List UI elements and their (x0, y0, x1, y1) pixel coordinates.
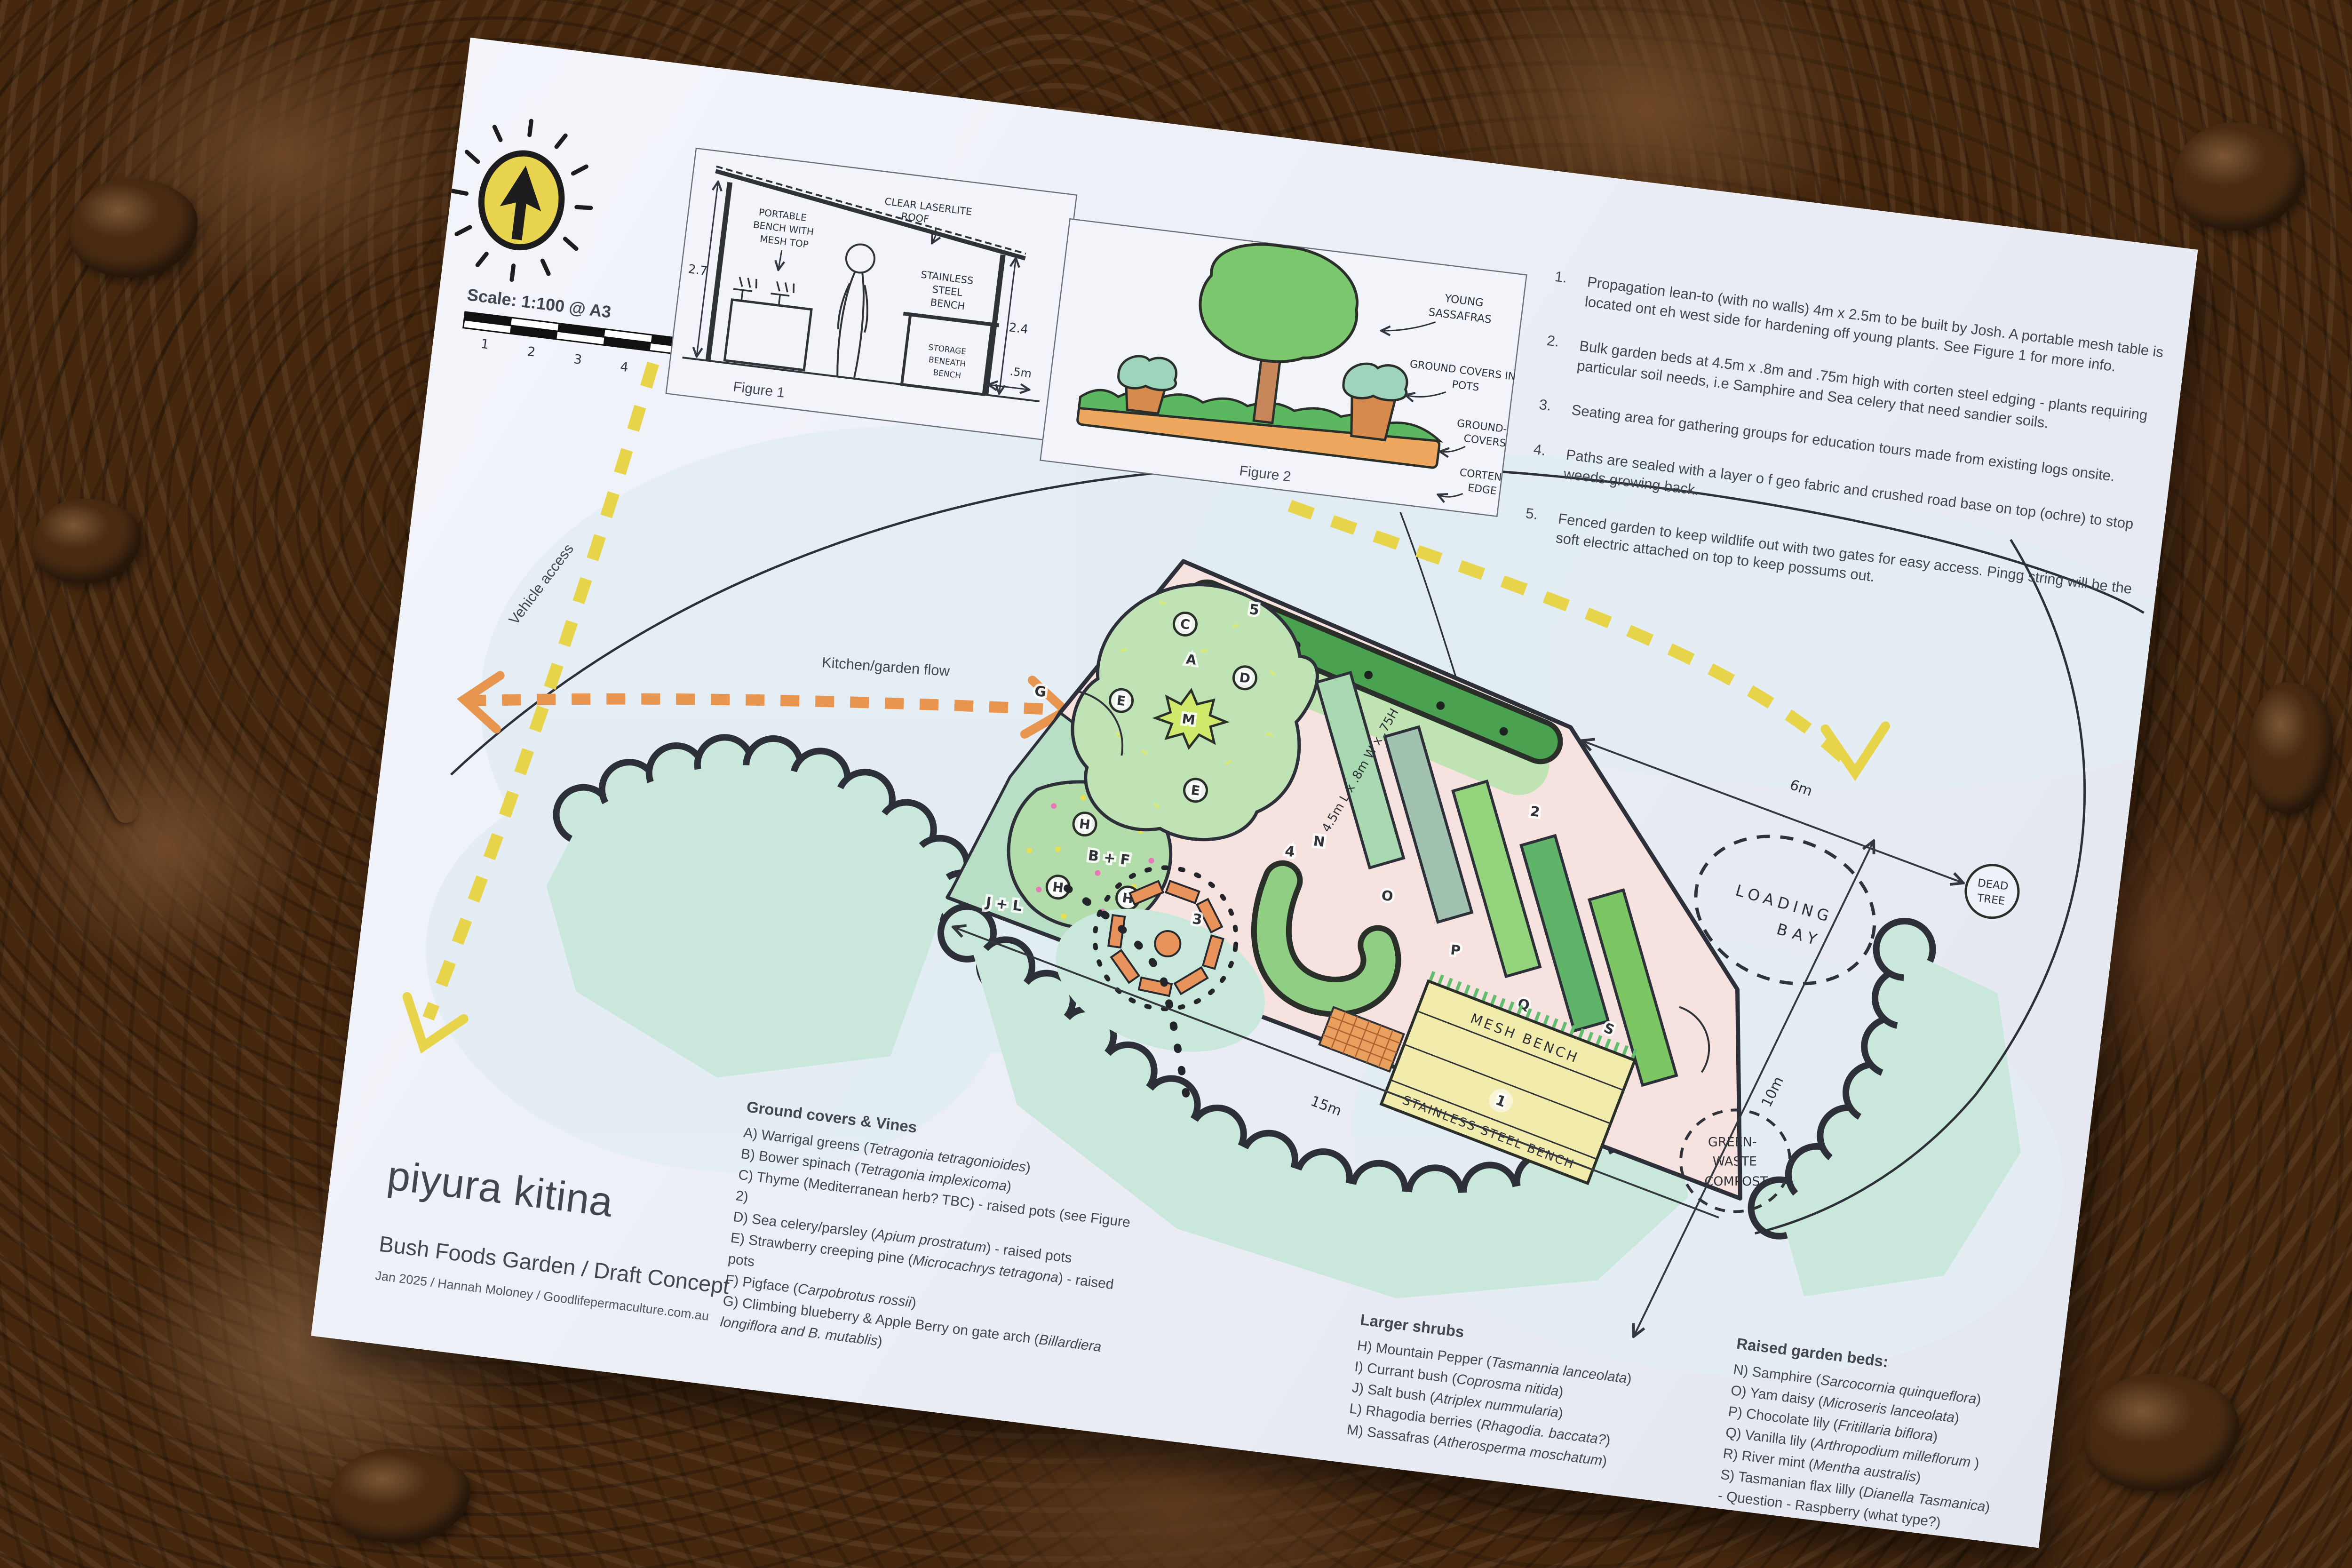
soil-clod (329, 1449, 470, 1543)
label-d: D (1239, 669, 1251, 686)
label-h: H (1078, 816, 1091, 833)
label-a: A (1185, 651, 1198, 668)
photo-of-garden-plan: Vehicle access Kitchen/garden flow (0, 0, 2352, 1568)
label-4: 4 (1284, 843, 1296, 860)
scale-bar: 1 2 3 4 5 (460, 312, 699, 385)
plan-drawing: Vehicle access Kitchen/garden flow (311, 38, 2198, 1548)
north-arrow-logo (443, 112, 600, 288)
label-e: E (1116, 692, 1127, 709)
soil-clod (33, 499, 141, 583)
scale-tick: 4 (620, 359, 629, 375)
dead-tree: DEAD TREE (1963, 862, 2022, 921)
note-number: 4. (1530, 441, 1558, 483)
label-c: C (1179, 616, 1191, 632)
label-2: 2 (1529, 803, 1541, 820)
soil-clod (2173, 122, 2305, 231)
label-e: E (1190, 782, 1201, 799)
twig (46, 675, 143, 828)
figure-1: 2.7 2.4 PORTABLE BENCH WITH MESH TOP STA… (666, 148, 1077, 440)
legend-ground-covers: Ground covers & Vines A) Warrigal greens… (719, 1098, 1150, 1382)
soil-clod (71, 179, 198, 278)
fig1-dim-2-4: 2.4 (1008, 320, 1029, 337)
loading-bay-label: BAY (1775, 920, 1825, 950)
dim-15m-label: 15m (1308, 1093, 1343, 1120)
compost-label: GREEN- (1708, 1135, 1757, 1150)
label-o: O (1381, 887, 1394, 905)
label-h: H (1052, 879, 1065, 896)
soil-clod (2249, 682, 2333, 814)
note-number: 5. (1522, 505, 1550, 547)
label-p: P (1450, 942, 1462, 959)
label-g: G (1033, 683, 1047, 701)
scale-tick: 3 (573, 352, 583, 367)
scale-tick: 1 (480, 337, 490, 352)
label-m: M (1181, 711, 1196, 728)
label-3: 3 (1192, 911, 1203, 928)
soil-clod (2084, 1374, 2239, 1491)
label-n: N (1312, 833, 1326, 850)
compost-label: COMPOST (1704, 1174, 1768, 1189)
label-5: 5 (1248, 601, 1260, 619)
fig1-dim-05: .5m (1009, 365, 1032, 380)
note-number: 2. (1543, 332, 1572, 374)
loading-bay-label: LOADING (1733, 881, 1835, 926)
paper-sheet: Vehicle access Kitchen/garden flow (311, 38, 2198, 1548)
fig1-dim-2-7: 2.7 (687, 262, 708, 279)
scale-tick: 2 (526, 344, 536, 360)
note-number: 1. (1551, 268, 1579, 310)
note-number: 3. (1538, 396, 1564, 418)
